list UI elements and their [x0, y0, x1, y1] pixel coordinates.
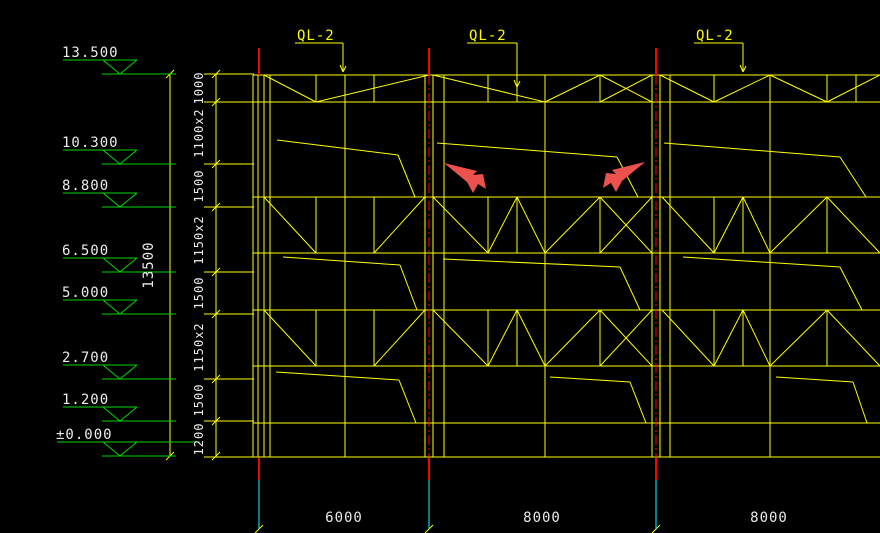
yellow-structure	[545, 75, 600, 102]
green-elevation-markers	[120, 150, 137, 164]
elevation-label: ±0.000	[56, 427, 113, 443]
yellow-structure	[743, 310, 770, 366]
yellow-structure	[545, 197, 600, 253]
yellow-structure	[443, 259, 620, 267]
yellow-structure	[437, 143, 617, 157]
yellow-structure	[550, 377, 630, 382]
elevation-label: 1.200	[62, 392, 109, 408]
span-dimension: 6000	[325, 510, 363, 526]
yellow-structure	[488, 197, 517, 253]
yellow-structure	[827, 197, 880, 253]
yellow-structure	[630, 382, 646, 423]
yellow-structure	[276, 372, 399, 380]
yellow-structure	[770, 197, 827, 253]
dim-segment-label: 1000	[192, 72, 206, 105]
elevation-label: 10.300	[62, 135, 119, 151]
yellow-structure	[517, 197, 545, 253]
elevation-label: 2.700	[62, 350, 109, 366]
annotation-arrow-left	[444, 163, 486, 193]
green-elevation-markers	[120, 300, 137, 314]
yellow-structure	[776, 377, 853, 382]
green-elevation-markers	[120, 442, 137, 456]
yellow-structure	[374, 310, 425, 366]
elevation-label: 8.800	[62, 178, 109, 194]
green-elevation-markers	[120, 407, 137, 421]
yellow-structure	[400, 265, 417, 310]
yellow-structure	[683, 257, 840, 267]
yellow-structure	[714, 75, 770, 102]
structural-elevation-drawing: 13.50010.3008.8006.5005.0002.7001.200±0.…	[0, 0, 880, 533]
yellow-structure	[433, 197, 488, 253]
yellow-structure	[316, 75, 429, 102]
green-elevation-markers	[103, 442, 120, 456]
beam-label: QL-2	[696, 28, 734, 44]
dim-segment-label: 1200	[192, 423, 206, 456]
dim-segment-label: 1500	[192, 277, 206, 310]
yellow-structure	[264, 75, 316, 102]
yellow-structure	[660, 75, 714, 102]
yellow-structure	[770, 310, 827, 366]
cad-drawing-viewport[interactable]: 13.50010.3008.8006.5005.0002.7001.200±0.…	[0, 0, 880, 533]
elevation-label: 5.000	[62, 285, 109, 301]
yellow-structure	[664, 143, 840, 157]
yellow-structure	[283, 257, 400, 265]
green-elevation-markers	[103, 193, 120, 207]
yellow-structure	[827, 75, 880, 102]
yellow-structure	[743, 197, 770, 253]
yellow-structure	[398, 155, 415, 197]
green-elevation-markers	[103, 60, 120, 74]
green-elevation-markers	[103, 150, 120, 164]
yellow-structure	[770, 75, 827, 102]
dim-segment-label: 1500	[192, 170, 206, 203]
yellow-structure	[264, 197, 316, 253]
yellow-structure	[433, 310, 488, 366]
green-elevation-markers	[103, 407, 120, 421]
dim-segment-label: 1500	[192, 384, 206, 417]
yellow-structure	[714, 197, 743, 253]
beam-label: QL-2	[469, 28, 507, 44]
yellow-structure	[374, 197, 425, 253]
green-elevation-markers	[120, 193, 137, 207]
yellow-structure	[714, 310, 743, 366]
yellow-structure	[399, 380, 416, 423]
green-elevation-markers	[120, 60, 137, 74]
green-elevation-markers	[103, 258, 120, 272]
yellow-structure	[620, 267, 640, 310]
yellow-structure	[545, 310, 600, 366]
dim-segment-label: 1150x2	[192, 215, 206, 264]
green-elevation-markers	[120, 258, 137, 272]
yellow-structure	[433, 75, 545, 102]
span-dimension: 8000	[523, 510, 561, 526]
span-dimension: 8000	[750, 510, 788, 526]
green-elevation-markers	[120, 365, 137, 379]
green-elevation-markers	[103, 300, 120, 314]
yellow-structure	[840, 267, 862, 310]
dim-segment-label: 1150x2	[192, 322, 206, 371]
dim-total-label: 13500	[141, 241, 157, 288]
yellow-structure	[517, 310, 545, 366]
elevation-label: 6.500	[62, 243, 109, 259]
yellow-structure	[264, 310, 316, 366]
dim-segment-label: 1100x2	[192, 108, 206, 157]
yellow-structure	[277, 140, 398, 155]
green-elevation-markers	[103, 365, 120, 379]
annotation-arrow-right	[603, 162, 645, 192]
elevation-label: 13.500	[62, 45, 119, 61]
yellow-structure	[488, 310, 517, 366]
yellow-structure	[840, 157, 866, 197]
yellow-structure	[827, 310, 880, 366]
beam-label: QL-2	[297, 28, 335, 44]
yellow-structure	[853, 382, 867, 423]
